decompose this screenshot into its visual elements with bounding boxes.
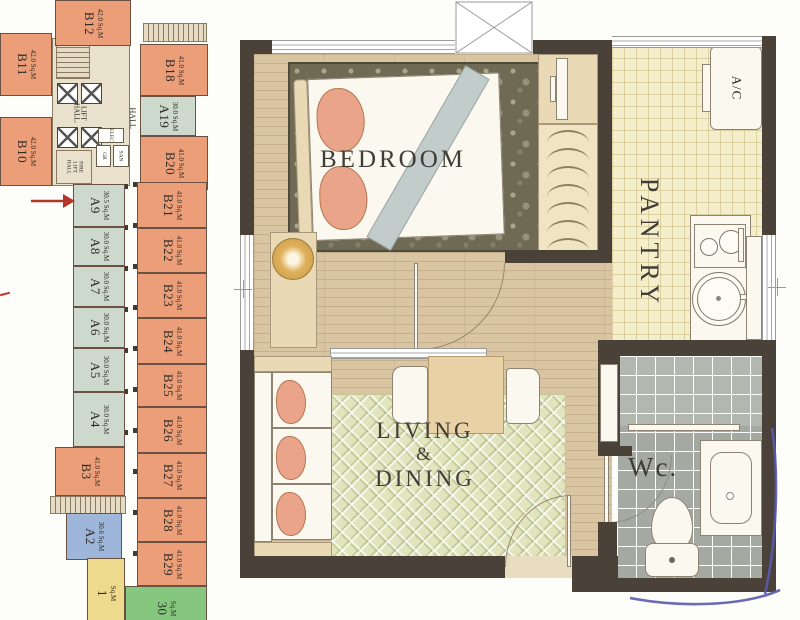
unit-area: 41.0 Sq.M xyxy=(175,326,182,355)
unit-A7: 30.0 Sq.MA7 xyxy=(73,266,125,307)
wall xyxy=(598,40,612,262)
living-text: LIVING xyxy=(376,418,473,444)
unit-area: 30.0 Sq.M xyxy=(102,355,109,384)
tall-cabinet xyxy=(746,236,762,340)
unit-label: B22 xyxy=(162,239,176,262)
hall-label: HALL xyxy=(124,98,140,138)
san-room: SAN xyxy=(113,145,129,167)
unit-area: 42.0 Sq.M xyxy=(29,137,36,166)
ac-label: A/C xyxy=(728,76,744,101)
unit-area: 41.0 Sq.M xyxy=(175,236,182,265)
unit-area: 30.0 Sq.M xyxy=(171,101,178,130)
ampersand-text: & xyxy=(416,444,434,466)
unit-area: 41.0 Sq.M xyxy=(175,461,182,490)
unit-label: 30 xyxy=(156,601,170,615)
ac-unit: A/C xyxy=(710,46,762,130)
unit-A6: 30.0 Sq.MA6 xyxy=(73,307,125,348)
unit-A1-partial: Sq.M1 xyxy=(87,558,125,620)
unit-B23: 41.0 Sq.MB23 xyxy=(137,273,207,318)
hanger-icon xyxy=(547,184,589,197)
unit-area: Sq.M xyxy=(109,585,116,600)
casement-window-icon xyxy=(455,1,533,54)
crosshair-mark-icon xyxy=(768,278,786,296)
unit-B25: 41.0 Sq.MB25 xyxy=(137,364,207,407)
burner xyxy=(700,238,718,256)
unit-area: 30.0 Sq.M xyxy=(102,313,109,342)
wall xyxy=(598,340,776,356)
unit-B18: 41.0 Sq.MB18 xyxy=(140,44,208,96)
wall xyxy=(240,556,505,578)
stairs-core xyxy=(56,42,90,79)
pantry-text: PANTRY xyxy=(634,177,664,307)
elec-room: ELEC xyxy=(98,128,124,143)
lift-hall-label: LIFT HALL. xyxy=(56,100,102,126)
pen-mark-icon xyxy=(598,408,800,620)
unit-area: 30.0 Sq.M xyxy=(102,405,109,434)
unit-label: A19 xyxy=(158,104,172,128)
window xyxy=(272,40,455,54)
unit-B24: 41.0 Sq.MB24 xyxy=(137,318,207,364)
dining-chair xyxy=(392,366,428,424)
fire-lift-text: LIFT xyxy=(71,161,77,173)
floor-plan-page: LIFT HALL. FIRE LIFT HALL ELEC GR SAN HA… xyxy=(0,0,800,620)
unit-area: 30.5 Sq.M xyxy=(102,191,109,220)
bedroom-label: BEDROOM xyxy=(320,146,520,174)
unit-B26: 41.0 Sq.MB26 xyxy=(137,407,207,453)
unit-label: A7 xyxy=(89,278,103,295)
fire-lift-text: HALL xyxy=(65,160,71,175)
fire-lift-hall: FIRE LIFT HALL xyxy=(56,150,92,184)
unit-A8: 30.0 Sq.MA8 xyxy=(73,227,125,266)
unit-A19: 30.0 Sq.MA19 xyxy=(140,96,196,136)
unit-area: Sq.M xyxy=(169,600,176,615)
unit-area: 41.0 Sq.M xyxy=(175,190,182,219)
pantry-label: PANTRY xyxy=(626,135,672,350)
unit-area: 30.6 Sq.M xyxy=(97,522,104,551)
unit-B29: 41.0 Sq.MB29 xyxy=(137,542,207,586)
unit-label: B24 xyxy=(162,329,176,352)
unit-label: B23 xyxy=(162,284,176,307)
unit-area: 41.0 Sq.M xyxy=(175,281,182,310)
unit-label: B27 xyxy=(162,464,176,487)
wall xyxy=(533,40,598,54)
lift-hall-text: HALL. xyxy=(72,103,79,123)
unit-B28: 41.0 Sq.MB28 xyxy=(137,498,207,542)
unit-A4: 30.0 Sq.MA4 xyxy=(73,392,125,447)
unit-B27: 41.0 Sq.MB27 xyxy=(137,453,207,498)
unit-label: B10 xyxy=(16,140,30,163)
sofa-backrest xyxy=(254,372,272,542)
unit-label: A5 xyxy=(89,362,103,379)
unit-label: B3 xyxy=(80,463,94,479)
unit-label: B20 xyxy=(164,151,178,174)
unit-label: A4 xyxy=(89,411,103,428)
unit-label: A6 xyxy=(89,319,103,336)
unit-label: A2 xyxy=(84,528,98,545)
unit-B3: 41.0 Sq.MB3 xyxy=(55,447,125,496)
unit-area: 41.0 Sq.M xyxy=(175,505,182,534)
wall xyxy=(505,250,612,263)
unit-area: 41.0 Sq.M xyxy=(175,415,182,444)
crosshair-mark-icon xyxy=(234,280,252,298)
sofa-cushion xyxy=(276,492,306,536)
unit-label: B18 xyxy=(164,58,178,81)
unit-B22: 41.0 Sq.MB22 xyxy=(137,228,207,273)
unit-label: B11 xyxy=(16,53,30,76)
hanger-icon xyxy=(547,220,589,233)
gr-text: GR xyxy=(100,152,106,160)
unit-label: B29 xyxy=(162,552,176,575)
unit-label: B26 xyxy=(162,418,176,441)
unit-label: B12 xyxy=(83,11,97,34)
unit-label: 1 xyxy=(96,589,110,596)
unit-area: 41.0 Sq.M xyxy=(175,549,182,578)
unit-area: 41.0 Sq.M xyxy=(177,148,184,177)
wall xyxy=(762,36,776,235)
tv-bracket xyxy=(550,76,556,102)
unit-A2: 30.6 Sq.MA2 xyxy=(66,513,122,560)
unit-B10: 42.0 Sq.MB10 xyxy=(0,117,52,186)
red-arrow-icon xyxy=(28,191,76,211)
unit-area: 41.0 Sq.M xyxy=(177,55,184,84)
san-text: SAN xyxy=(118,150,124,161)
sofa-armrest xyxy=(254,356,332,372)
table-lamp xyxy=(272,238,314,280)
unit-B30-partial: Sq.M30 xyxy=(125,586,207,620)
unit-B21: 41.0 Sq.MB21 xyxy=(137,182,207,228)
unit-B12: 42.0 Sq.MB12 xyxy=(55,0,131,46)
building-key-plan: LIFT HALL. FIRE LIFT HALL ELEC GR SAN HA… xyxy=(0,0,235,620)
unit-label: B21 xyxy=(162,193,176,216)
sofa-cushion xyxy=(276,380,306,424)
unit-area: 30.0 Sq.M xyxy=(102,232,109,261)
gr-room: GR xyxy=(96,145,111,167)
unit-A9: 30.5 Sq.MA9 xyxy=(73,184,125,227)
wall xyxy=(240,350,254,578)
unit-B11: 42.0 Sq.MB11 xyxy=(0,33,52,96)
window xyxy=(612,36,762,48)
unit-label: B28 xyxy=(162,508,176,531)
stairs-top-right xyxy=(143,23,207,42)
fire-lift-text: FIRE xyxy=(77,161,83,173)
dining-chair xyxy=(506,368,540,424)
stove-controls xyxy=(738,228,744,262)
dining-text: DINING xyxy=(375,466,475,492)
unit-area: 30.0 Sq.M xyxy=(102,272,109,301)
sofa-cushion xyxy=(276,436,306,480)
ac-tab xyxy=(702,64,711,112)
living-dining-label: LIVING & DINING xyxy=(350,418,500,492)
unit-A5: 30.0 Sq.MA5 xyxy=(73,348,125,392)
elec-text: ELEC xyxy=(108,129,114,143)
hanger-icon xyxy=(547,130,589,143)
unit-area: 41.0 Sq.M xyxy=(175,371,182,400)
unit-label: A8 xyxy=(89,238,103,255)
unit-area: 42.0 Sq.M xyxy=(96,8,103,37)
unit-label: A9 xyxy=(89,197,103,214)
hanger-icon xyxy=(547,202,589,215)
unit-label: B25 xyxy=(162,374,176,397)
red-dash-mark xyxy=(0,292,10,297)
stairs-lower xyxy=(50,496,126,514)
tv xyxy=(556,58,568,120)
wardrobe xyxy=(538,124,598,252)
hall-text: HALL xyxy=(128,107,136,128)
unit-area: 42.0 Sq.M xyxy=(29,50,36,79)
wall xyxy=(240,40,274,54)
sink-drain xyxy=(716,296,721,301)
unit-area: 41.0 Sq.M xyxy=(93,457,100,486)
unit-floor-plan: BEDROOM PANTRY A/C xyxy=(235,0,800,620)
lift-shaft xyxy=(57,127,78,148)
hanger-icon xyxy=(547,166,589,179)
hanger-icon xyxy=(547,148,589,161)
tv-console xyxy=(538,54,598,124)
wall xyxy=(240,54,254,235)
